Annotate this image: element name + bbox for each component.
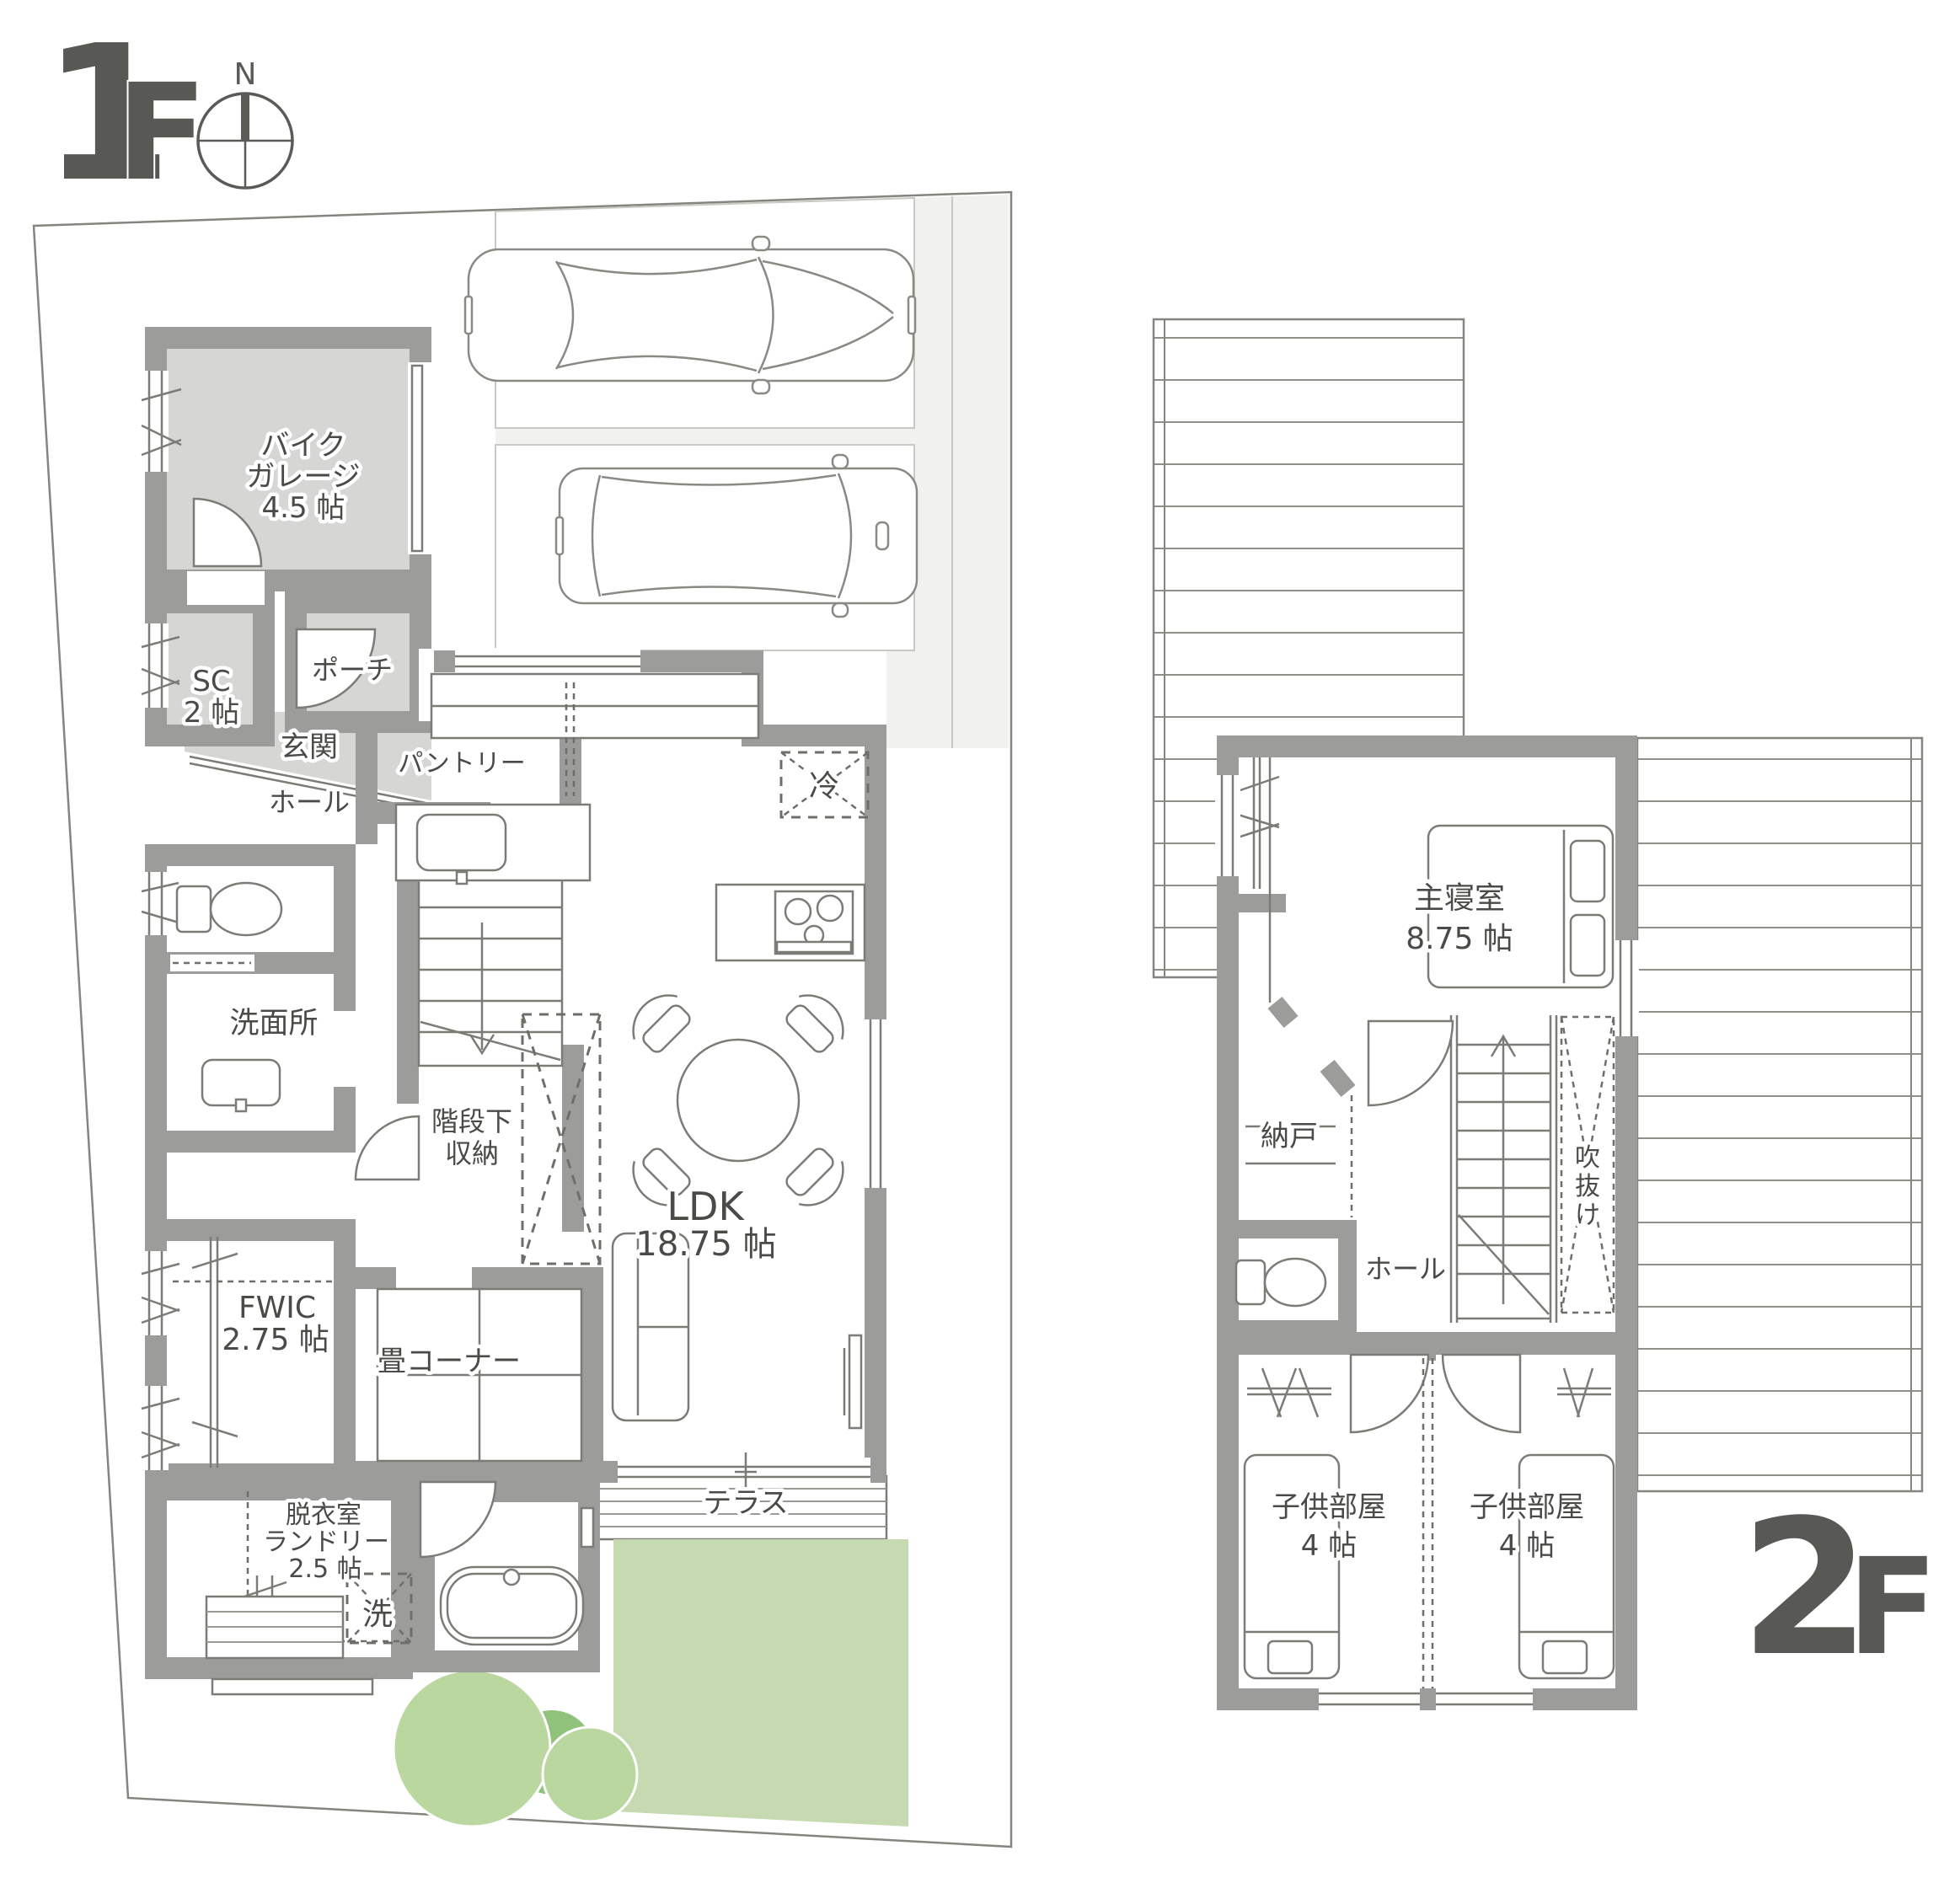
room-label-laundry: 2.5 帖 (288, 1554, 361, 1584)
room-label-sc: SC (192, 665, 230, 698)
room-label-tatami: 畳コーナー (378, 1345, 521, 1378)
room-label-void: 抜 (1575, 1172, 1600, 1201)
floor2-suffix: F (1847, 1530, 1938, 1685)
room-label-master-bedroom: 8.75 帖 (1406, 922, 1513, 956)
room-label-laundry: ランドリー (263, 1527, 389, 1557)
bed-icon (1245, 1455, 1339, 1678)
floor1-title: 1 F (42, 6, 207, 223)
room-label-under-stair: 収納 (445, 1137, 499, 1169)
car-icon (465, 237, 915, 393)
room-label-ldk: LDK (667, 1184, 745, 1229)
car-icon (556, 455, 917, 617)
room-label-laundry: 脱衣室 (286, 1500, 361, 1530)
room-label-void: け (1575, 1201, 1600, 1230)
room-label-kids-left: 子供部屋 (1272, 1490, 1386, 1524)
room-label-bike-garage: 4.5 帖 (262, 491, 345, 525)
room-label-washroom: 洗面所 (229, 1007, 318, 1040)
room-label-kids-right: 4 帖 (1499, 1529, 1555, 1563)
stairs-1f (419, 876, 562, 1066)
floor1-plan: バイク ガレージ 4.5 帖 SC 2 帖 ポーチ 玄関 ホール パントリー 冷… (34, 6, 1011, 1847)
bed-icon (1519, 1455, 1614, 1678)
stove-icon (775, 891, 853, 954)
toilet-icon (1236, 1259, 1325, 1306)
floorplan-drawing: バイク ガレージ 4.5 帖 SC 2 帖 ポーチ 玄関 ホール パントリー 冷… (0, 0, 1960, 1899)
room-label-kids-left: 4 帖 (1301, 1529, 1357, 1563)
room-label-kids-right: 子供部屋 (1470, 1490, 1584, 1524)
room-label-hall-1f: ホール (269, 786, 350, 818)
room-label-hall-2f: ホール (1365, 1253, 1446, 1285)
floor1-suffix: F (116, 56, 207, 211)
room-label-sc: 2 帖 (184, 696, 239, 730)
label-terrace: テラス (703, 1486, 788, 1520)
toilet-icon (177, 883, 281, 935)
room-label-pantry: パントリー (398, 749, 526, 778)
room-label-under-stair: 階段下 (431, 1105, 512, 1137)
floor2-plan: 主寝室 8.75 帖 納戸 ホール 吹 抜 け 子供部屋 4 帖 子供部屋 4 … (1154, 319, 1938, 1712)
label-fridge: 冷 (809, 769, 839, 804)
room-label-master-bedroom: 主寝室 (1414, 881, 1505, 916)
room-label-bike-garage: ガレージ (246, 460, 360, 494)
lawn-area (613, 1539, 908, 1827)
floor2-title: 2 F (1740, 1480, 1938, 1698)
washbasin-icon (202, 1060, 280, 1111)
label-washer: 洗 (362, 1597, 393, 1632)
room-label-porch: ポーチ (312, 654, 393, 686)
compass-north-label: N (234, 57, 257, 92)
compass-icon: N (198, 57, 292, 188)
floorplan-page: バイク ガレージ 4.5 帖 SC 2 帖 ポーチ 玄関 ホール パントリー 冷… (0, 0, 1960, 1899)
roof-right (1637, 738, 1922, 1491)
room-label-nando: 納戸 (1261, 1120, 1318, 1153)
room-label-fwic: 2.75 帖 (222, 1323, 329, 1357)
room-label-fwic: FWIC (238, 1291, 316, 1325)
room-label-genkan: 玄関 (281, 730, 338, 764)
room-label-bike-garage: バイク (260, 429, 345, 463)
room-label-ldk: 18.75 帖 (635, 1225, 776, 1264)
room-label-void: 吹 (1575, 1143, 1600, 1173)
